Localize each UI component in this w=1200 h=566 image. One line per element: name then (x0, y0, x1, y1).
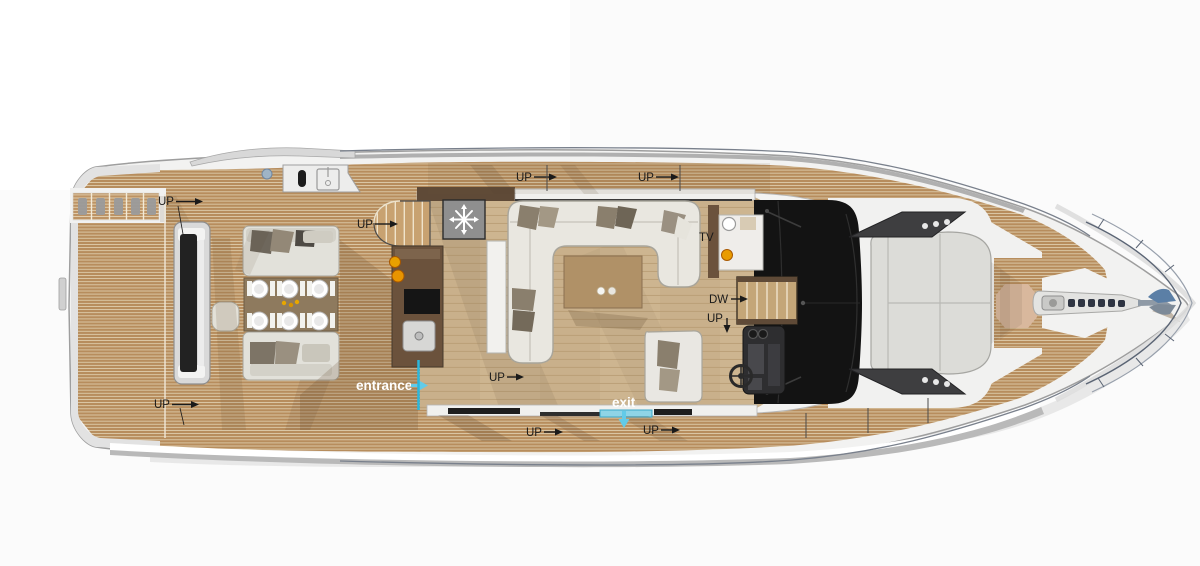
svg-text:UP: UP (707, 313, 723, 325)
svg-text:TV: TV (699, 232, 714, 244)
svg-text:UP: UP (516, 172, 532, 184)
svg-text:UP: UP (643, 425, 659, 437)
svg-text:UP: UP (357, 219, 373, 231)
svg-text:exit: exit (612, 395, 636, 410)
svg-text:UP: UP (158, 196, 174, 208)
svg-text:UP: UP (489, 372, 505, 384)
svg-text:UP: UP (154, 399, 170, 411)
svg-text:DW: DW (709, 294, 728, 306)
svg-text:entrance: entrance (356, 378, 413, 393)
svg-text:UP: UP (526, 427, 542, 439)
svg-text:UP: UP (638, 172, 654, 184)
